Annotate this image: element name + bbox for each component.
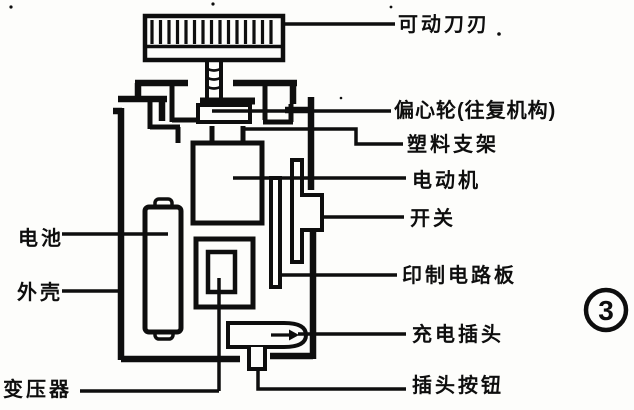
figure-number: 3 <box>598 295 614 326</box>
label-transformer: 变压器 <box>3 377 72 401</box>
label-plug-button: 插头按钮 <box>412 373 504 397</box>
scanned-diagram-page: 可动刀刃 偏心轮(往复机构) 塑料支架 电动机 开关 印制电路板 充电插头 插头… <box>0 0 634 410</box>
label-charging-plug: 充电插头 <box>412 322 504 346</box>
label-motor: 电动机 <box>412 168 481 192</box>
label-battery: 电池 <box>18 227 64 250</box>
blade-comb-teeth <box>152 20 271 44</box>
label-movable-blade: 可动刀刃 <box>398 13 490 36</box>
shaver-diagram-canvas: 可动刀刃 偏心轮(往复机构) 塑料支架 电动机 开关 印制电路板 充电插头 插头… <box>0 0 634 410</box>
plug-button-stem <box>249 347 265 369</box>
switch-body <box>292 160 322 262</box>
leader-plug-button <box>258 369 406 389</box>
drive-stem <box>206 60 222 100</box>
transformer <box>196 239 253 307</box>
figure-number-badge: 3 <box>586 290 626 330</box>
motor-body <box>193 143 262 223</box>
label-pcb: 印制电路板 <box>402 263 517 287</box>
label-eccentric-wheel: 偏心轮(往复机构) <box>394 98 556 122</box>
battery-body <box>145 207 181 332</box>
transformer-core <box>208 252 235 292</box>
pcb <box>271 178 280 287</box>
leader-plastic-bracket <box>245 129 403 144</box>
battery <box>145 199 181 339</box>
label-switch: 开关 <box>410 206 456 230</box>
label-plastic-bracket: 塑料支架 <box>407 132 499 156</box>
label-case: 外壳 <box>17 280 63 304</box>
movable-blade-head <box>145 16 283 60</box>
